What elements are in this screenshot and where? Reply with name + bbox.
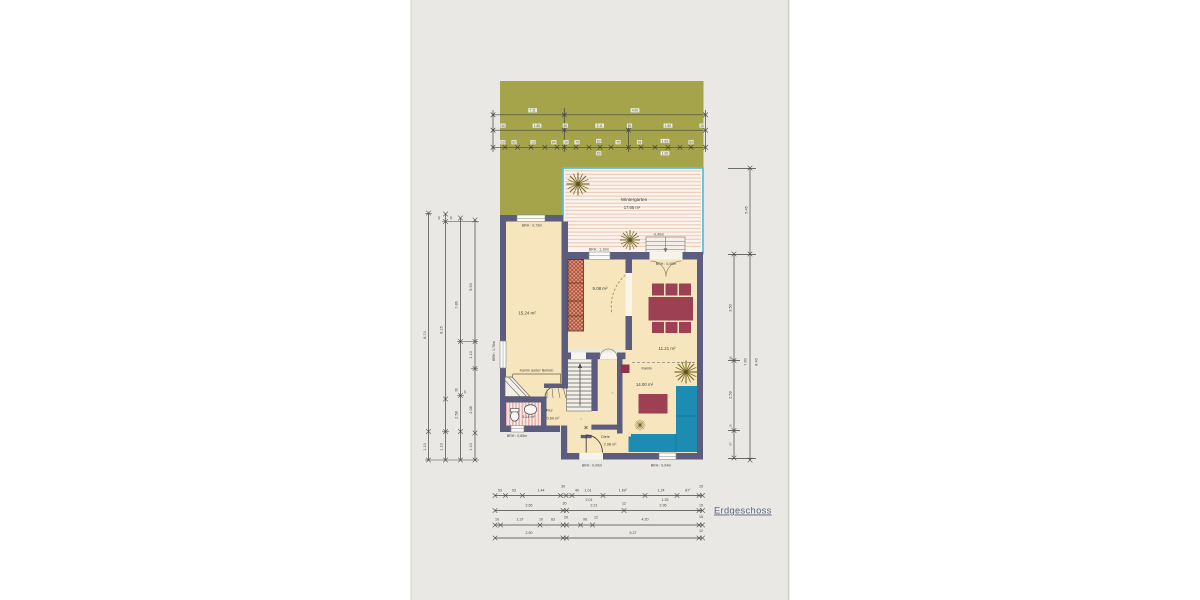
svg-text:5.27: 5.27 [630,531,637,535]
svg-text:12: 12 [594,516,598,520]
svg-text:10: 10 [495,518,499,522]
svg-text:1.69°: 1.69° [619,489,628,493]
svg-text:50: 50 [628,124,632,128]
svg-text:Flur: Flur [546,409,553,413]
svg-text:7.11: 7.11 [530,109,536,113]
svg-text:10: 10 [564,141,568,145]
svg-text:15: 15 [699,504,703,508]
svg-text:2.01: 2.01 [586,498,593,502]
svg-text:20: 20 [437,216,441,220]
svg-text:75: 75 [575,141,579,145]
svg-text:30: 30 [449,216,453,220]
svg-text:14.00 m²: 14.00 m² [636,382,654,387]
svg-text:10: 10 [539,518,543,522]
svg-text:84: 84 [552,141,556,145]
svg-text:11.21 m²: 11.21 m² [658,346,676,351]
svg-text:15: 15 [699,515,703,519]
svg-text:53: 53 [512,489,516,493]
svg-text:15: 15 [699,485,703,489]
svg-text:75: 75 [616,141,620,145]
svg-text:Wintergarten: Wintergarten [621,197,648,202]
svg-text:BRH : 0,00m: BRH : 0,00m [656,262,677,266]
svg-text:40: 40 [501,124,505,128]
svg-text:50: 50 [597,152,601,156]
svg-text:1.85: 1.85 [534,124,540,128]
svg-text:30: 30 [563,502,567,506]
svg-text:BRH : 0,00m: BRH : 0,00m [582,464,603,468]
svg-text:2.08: 2.08 [469,406,473,413]
svg-text:12: 12 [699,529,703,533]
svg-text:25: 25 [729,356,733,360]
svg-text:63: 63 [551,518,555,522]
svg-text:2.11: 2.11 [597,124,603,128]
svg-text:3.14 m²: 3.14 m² [522,415,536,419]
svg-text:62: 62 [512,141,516,145]
svg-text:1.25: 1.25 [662,498,669,502]
svg-text:40: 40 [575,489,579,493]
svg-text:13: 13 [531,141,535,145]
svg-text:30: 30 [561,485,565,489]
svg-text:1.37: 1.37 [517,518,524,522]
svg-text:2.50: 2.50 [526,531,533,535]
svg-text:7.60: 7.60 [744,358,748,365]
svg-text:8.15: 8.15 [440,326,444,333]
svg-text:2.21: 2.21 [591,504,598,508]
svg-text:2.98 m²: 2.98 m² [604,443,618,447]
svg-text:1.44: 1.44 [538,489,545,493]
svg-text:BRH : 1,10m: BRH : 1,10m [589,248,610,252]
svg-text:4.20: 4.20 [642,518,649,522]
svg-text:BRH : 0,78m: BRH : 0,78m [492,341,496,361]
svg-text:20: 20 [564,516,568,520]
svg-text:8.40: 8.40 [755,358,759,365]
svg-text:BRH : 0,85m: BRH : 0,85m [507,434,528,438]
svg-text:0.69 m²: 0.69 m² [547,417,561,421]
svg-text:2.96: 2.96 [660,504,667,508]
svg-text:87°: 87° [685,489,691,493]
svg-text:1.00: 1.00 [662,152,668,156]
svg-text:Kamin: Kamin [642,367,652,371]
svg-text:-0,40m: -0,40m [653,233,664,237]
svg-text:15: 15 [700,124,704,128]
svg-text:9.08 m²: 9.08 m² [593,286,608,291]
svg-text:3.50: 3.50 [729,304,733,311]
svg-text:1.10: 1.10 [440,443,444,450]
svg-text:8.74: 8.74 [423,331,427,338]
svg-text:12: 12 [622,502,626,506]
svg-text:1.10: 1.10 [423,443,427,450]
svg-text:1.10: 1.10 [469,351,473,358]
svg-text:1.10: 1.10 [469,443,473,450]
svg-text:7.86: 7.86 [455,301,459,308]
svg-text:Erdgeschoss: Erdgeschoss [714,506,772,516]
svg-text:97: 97 [729,442,733,446]
svg-text:36: 36 [463,390,467,394]
svg-text:2.58: 2.58 [455,411,459,418]
svg-text:5.45: 5.45 [745,206,749,213]
svg-text:≈: ≈ [580,417,582,421]
svg-text:2.59: 2.59 [729,391,733,398]
svg-text:2.65: 2.65 [526,504,533,508]
svg-text:15: 15 [729,424,733,428]
svg-text:1.01: 1.01 [585,489,592,493]
svg-text:BRH : 0,73m: BRH : 0,73m [522,224,543,228]
svg-text:83: 83 [689,141,693,145]
svg-text:≈: ≈ [612,391,614,395]
svg-text:17.65 m²: 17.65 m² [624,205,641,210]
svg-text:5.93: 5.93 [469,283,473,290]
svg-text:Kamin außer Betrieb: Kamin außer Betrieb [520,369,554,373]
svg-text:30: 30 [455,388,459,392]
svg-text:65: 65 [564,124,568,128]
svg-text:1.80: 1.80 [665,124,671,128]
svg-text:Diele: Diele [601,435,610,439]
svg-text:1.24: 1.24 [658,489,665,493]
svg-text:63: 63 [638,141,642,145]
svg-text:63: 63 [597,139,601,143]
svg-text:4.90: 4.90 [632,109,638,113]
svg-text:BRH : 0,94m: BRH : 0,94m [651,464,672,468]
svg-text:15.24 m²: 15.24 m² [518,311,536,316]
svg-text:10: 10 [501,141,505,145]
svg-text:98: 98 [583,518,587,522]
svg-text:53: 53 [498,489,502,493]
svg-text:1.63: 1.63 [662,139,668,143]
